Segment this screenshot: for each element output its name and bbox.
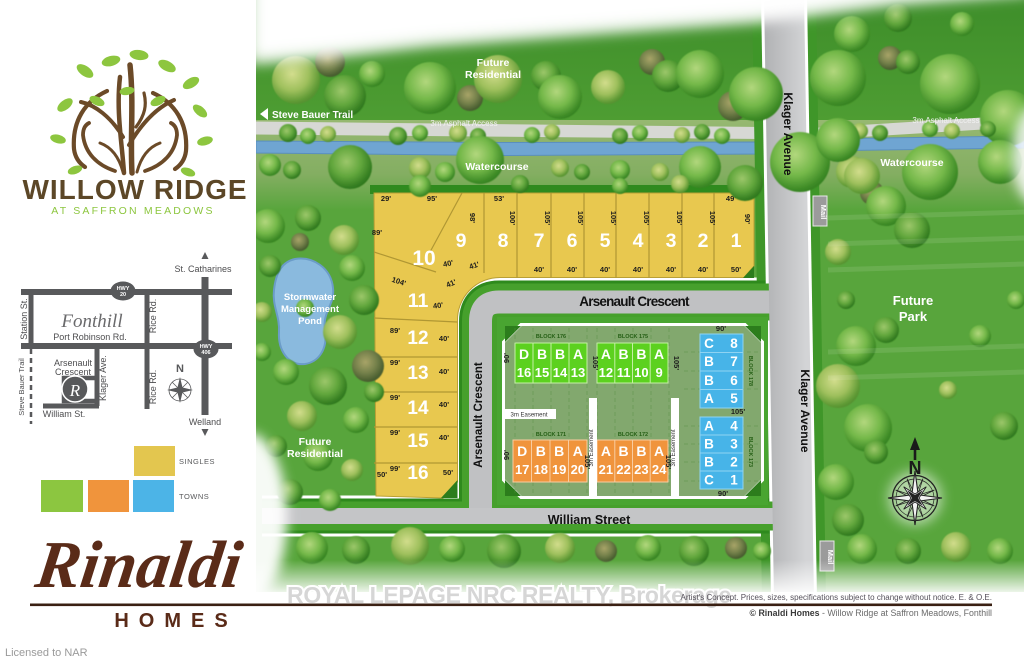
- svg-text:Klager Avenue: Klager Avenue: [798, 369, 812, 452]
- svg-text:15: 15: [535, 365, 549, 380]
- svg-text:Stormwater: Stormwater: [284, 292, 337, 303]
- svg-text:17: 17: [515, 462, 529, 477]
- svg-text:7: 7: [534, 230, 545, 252]
- svg-text:98': 98': [468, 213, 477, 223]
- svg-text:3m Easement: 3m Easement: [510, 413, 547, 419]
- svg-text:99': 99': [390, 393, 400, 402]
- svg-text:406: 406: [201, 350, 210, 356]
- svg-text:BLOCK 176: BLOCK 176: [536, 334, 566, 340]
- svg-text:90': 90': [743, 214, 752, 224]
- svg-text:Rinaldi: Rinaldi: [31, 527, 248, 602]
- svg-text:105': 105': [609, 211, 618, 226]
- svg-text:B: B: [704, 373, 714, 388]
- svg-text:5: 5: [600, 230, 611, 252]
- svg-text:Rice Rd.: Rice Rd.: [148, 370, 158, 405]
- svg-text:D: D: [519, 346, 529, 362]
- svg-text:Rice Rd.: Rice Rd.: [148, 299, 158, 334]
- svg-text:105': 105': [583, 455, 592, 470]
- svg-text:40': 40': [600, 265, 610, 274]
- svg-text:B: B: [636, 443, 646, 459]
- svg-text:B: B: [554, 443, 564, 459]
- svg-text:29': 29': [381, 194, 391, 203]
- svg-text:10: 10: [412, 247, 435, 270]
- svg-text:1: 1: [731, 230, 742, 252]
- svg-text:Management: Management: [281, 304, 340, 315]
- svg-text:BLOCK 172: BLOCK 172: [618, 432, 648, 438]
- svg-text:Watercourse: Watercourse: [880, 157, 943, 169]
- svg-text:N: N: [176, 363, 184, 375]
- svg-text:A: A: [601, 346, 611, 362]
- svg-text:A: A: [601, 443, 611, 459]
- svg-text:B: B: [536, 443, 546, 459]
- svg-text:Residential: Residential: [287, 448, 343, 460]
- svg-text:Steve Bauer Trail: Steve Bauer Trail: [17, 358, 26, 416]
- svg-text:WILLOW RIDGE: WILLOW RIDGE: [22, 174, 247, 205]
- svg-text:Steve Bauer Trail: Steve Bauer Trail: [272, 110, 353, 121]
- svg-text:B: B: [704, 455, 714, 470]
- svg-text:40': 40': [633, 265, 643, 274]
- svg-text:Klager Ave.: Klager Ave.: [98, 355, 108, 401]
- svg-text:50': 50': [443, 468, 453, 477]
- svg-text:Klager Avenue: Klager Avenue: [781, 92, 795, 175]
- svg-text:B: B: [704, 437, 714, 452]
- svg-text:40': 40': [439, 367, 449, 376]
- svg-text:2: 2: [730, 455, 738, 470]
- svg-text:R: R: [69, 381, 81, 400]
- svg-text:18: 18: [534, 462, 548, 477]
- svg-text:20: 20: [120, 292, 126, 298]
- svg-text:B: B: [619, 443, 629, 459]
- svg-text:3m Asphalt Access: 3m Asphalt Access: [912, 116, 979, 125]
- svg-text:40': 40': [666, 265, 676, 274]
- svg-text:6: 6: [567, 230, 578, 252]
- svg-text:SINGLES: SINGLES: [179, 457, 215, 466]
- svg-text:53': 53': [494, 194, 504, 203]
- svg-text:Artist's Concept. Prices, size: Artist's Concept. Prices, sizes, specifi…: [681, 593, 992, 602]
- svg-text:BLOCK 171: BLOCK 171: [536, 432, 566, 438]
- svg-text:99': 99': [390, 464, 400, 473]
- svg-text:St. Catharines: St. Catharines: [174, 264, 232, 274]
- svg-text:22: 22: [616, 462, 630, 477]
- svg-text:1: 1: [730, 473, 738, 488]
- svg-text:40': 40': [567, 265, 577, 274]
- svg-text:40': 40': [439, 334, 449, 343]
- svg-text:Arsenault Crescent: Arsenault Crescent: [473, 362, 485, 468]
- svg-text:50': 50': [377, 470, 387, 479]
- svg-text:11: 11: [617, 365, 631, 380]
- svg-text:10: 10: [634, 365, 648, 380]
- svg-text:90': 90': [502, 450, 511, 460]
- svg-text:C: C: [704, 473, 714, 488]
- svg-text:Port Robinson Rd.: Port Robinson Rd.: [53, 332, 127, 342]
- svg-text:TOWNS: TOWNS: [179, 492, 209, 501]
- svg-text:Licensed to NAR: Licensed to NAR: [5, 647, 88, 659]
- svg-text:105': 105': [642, 211, 651, 226]
- svg-text:D: D: [517, 443, 527, 459]
- svg-text:HOMES: HOMES: [114, 610, 237, 632]
- svg-text:C: C: [704, 336, 714, 351]
- svg-text:Pond: Pond: [298, 316, 322, 327]
- svg-text:40': 40': [439, 433, 449, 442]
- svg-text:7: 7: [730, 354, 738, 369]
- svg-text:13: 13: [407, 363, 428, 384]
- svg-text:3m Asphalt Access: 3m Asphalt Access: [430, 119, 497, 128]
- svg-text:Arsenault Crescent: Arsenault Crescent: [579, 294, 690, 309]
- svg-text:50': 50': [731, 265, 741, 274]
- svg-text:Fonthill: Fonthill: [60, 311, 122, 332]
- svg-text:89': 89': [372, 228, 382, 237]
- svg-text:15: 15: [407, 431, 429, 452]
- svg-text:105': 105': [675, 211, 684, 226]
- svg-text:Future: Future: [477, 57, 510, 69]
- svg-text:23: 23: [634, 462, 648, 477]
- svg-text:B: B: [619, 346, 629, 362]
- svg-text:4: 4: [730, 419, 738, 434]
- svg-text:A: A: [573, 346, 583, 362]
- svg-text:14: 14: [553, 365, 568, 380]
- svg-text:105': 105': [708, 211, 717, 226]
- svg-text:99': 99': [390, 358, 400, 367]
- svg-text:A: A: [704, 391, 714, 406]
- svg-text:40': 40': [698, 265, 708, 274]
- svg-text:3: 3: [730, 437, 738, 452]
- svg-text:BLOCK 178: BLOCK 178: [747, 356, 753, 386]
- svg-text:A: A: [654, 346, 664, 362]
- svg-text:20: 20: [571, 462, 585, 477]
- svg-text:Future: Future: [299, 436, 332, 448]
- svg-text:Park: Park: [899, 309, 928, 324]
- svg-text:AT SAFFRON MEADOWS: AT SAFFRON MEADOWS: [51, 205, 214, 217]
- svg-text:Station St.: Station St.: [19, 298, 29, 340]
- svg-text:89': 89': [390, 326, 400, 335]
- svg-text:8: 8: [730, 336, 738, 351]
- svg-text:8: 8: [498, 230, 509, 252]
- svg-text:Watercourse: Watercourse: [465, 161, 528, 173]
- svg-text:99': 99': [390, 428, 400, 437]
- svg-text:William St.: William St.: [43, 409, 86, 419]
- svg-text:105': 105': [543, 211, 552, 226]
- svg-text:40': 40': [432, 300, 443, 310]
- svg-text:90': 90': [502, 353, 511, 363]
- svg-text:3: 3: [666, 230, 677, 252]
- svg-text:6: 6: [730, 373, 738, 388]
- svg-text:13: 13: [571, 365, 585, 380]
- svg-text:BLOCK 173: BLOCK 173: [747, 437, 753, 467]
- svg-text:12: 12: [407, 328, 428, 349]
- svg-text:11: 11: [408, 290, 429, 312]
- svg-text:Mail: Mail: [819, 205, 828, 220]
- svg-text:William Street: William Street: [548, 513, 631, 527]
- svg-text:19: 19: [552, 462, 566, 477]
- svg-text:105': 105': [664, 455, 673, 470]
- svg-text:105': 105': [591, 356, 600, 371]
- svg-text:21: 21: [599, 462, 613, 477]
- svg-text:© Rinaldi Homes - Willow Ridge: © Rinaldi Homes - Willow Ridge at Saffro…: [750, 608, 993, 618]
- svg-text:Future: Future: [893, 293, 933, 308]
- svg-text:9: 9: [456, 230, 467, 252]
- svg-text:95': 95': [427, 194, 437, 203]
- svg-text:9: 9: [655, 365, 662, 380]
- svg-text:90': 90': [718, 489, 728, 498]
- svg-text:40': 40': [439, 400, 449, 409]
- svg-text:14: 14: [407, 398, 429, 419]
- svg-text:Welland: Welland: [189, 417, 221, 427]
- svg-text:2: 2: [698, 230, 709, 252]
- svg-text:4: 4: [633, 230, 644, 252]
- svg-text:B: B: [636, 346, 646, 362]
- svg-text:5: 5: [730, 391, 738, 406]
- svg-text:B: B: [704, 354, 714, 369]
- svg-text:A: A: [654, 443, 664, 459]
- svg-text:A: A: [573, 443, 583, 459]
- svg-text:Residential: Residential: [465, 69, 521, 81]
- svg-text:105': 105': [576, 211, 585, 226]
- svg-text:16: 16: [407, 463, 428, 484]
- svg-text:40': 40': [534, 265, 544, 274]
- svg-text:B: B: [555, 346, 565, 362]
- svg-text:100': 100': [508, 211, 517, 226]
- svg-text:BLOCK 175: BLOCK 175: [618, 334, 648, 340]
- svg-text:105': 105': [672, 356, 681, 371]
- svg-text:90': 90': [716, 324, 726, 333]
- svg-text:105': 105': [731, 407, 746, 416]
- svg-text:A: A: [704, 419, 714, 434]
- svg-text:B: B: [537, 346, 547, 362]
- svg-text:16: 16: [517, 365, 531, 380]
